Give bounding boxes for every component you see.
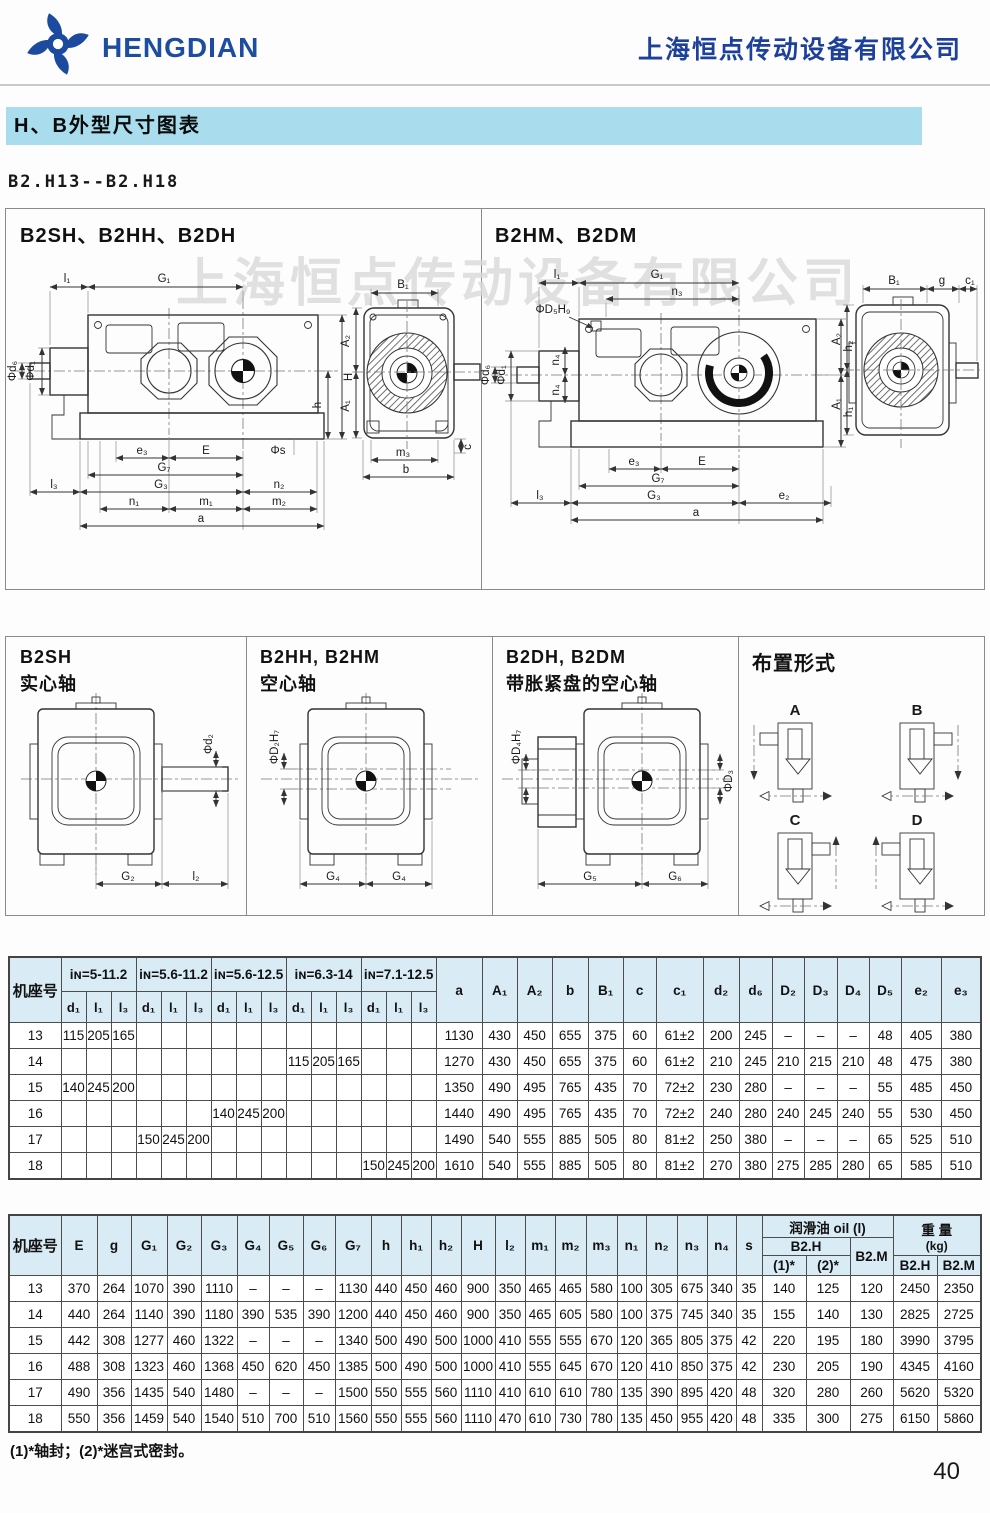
table-cell: 435: [588, 1101, 623, 1127]
row-header: 机座号: [9, 957, 61, 1023]
table-cell: 1110: [461, 1406, 495, 1433]
drawing-b2sh-side-end: l₁ G₁ Φd₁ Φd₆ H h e₃ E Φs G₇ l₃ G₃ n₂ n₁…: [6, 253, 481, 555]
table-cell: [186, 1023, 211, 1049]
table-cell: 560: [431, 1380, 461, 1406]
table-cell: [111, 1049, 136, 1075]
frame-size: 16: [9, 1354, 61, 1380]
column-header: d₆: [739, 957, 772, 1023]
table-cell: [161, 1023, 186, 1049]
svg-text:G₄: G₄: [326, 871, 340, 883]
table-cell: 200: [111, 1075, 136, 1101]
table-cell: 450: [517, 1049, 552, 1075]
table-cell: 410: [646, 1354, 677, 1380]
table-cell: 645: [555, 1354, 586, 1380]
sub-header: l₁: [236, 992, 261, 1023]
panel-title: B2HM、B2DM: [495, 219, 637, 248]
weight-cell: 6150: [893, 1406, 937, 1433]
dimension-table-1-wrap: 机座号iɴ=5-11.2iɴ=5.6-11.2iɴ=5.6-12.5iɴ=6.3…: [8, 956, 982, 1180]
table-cell: 308: [97, 1354, 131, 1380]
table-cell: 450: [646, 1406, 677, 1433]
table-cell: 610: [555, 1380, 586, 1406]
table-cell: [236, 1153, 261, 1180]
svg-text:A₂: A₂: [831, 333, 843, 345]
arrangement-label: D: [912, 812, 923, 829]
table-row: 1411520516512704304506553756061±22102452…: [9, 1049, 981, 1075]
svg-text:A₂: A₂: [340, 335, 352, 347]
table-cell: 555: [517, 1153, 552, 1180]
oil-cell: 140: [762, 1276, 806, 1302]
svg-text:m₂: m₂: [272, 496, 286, 508]
table-cell: [411, 1101, 436, 1127]
table-cell: 450: [237, 1354, 269, 1380]
svg-text:m₃: m₃: [396, 447, 411, 459]
table-cell: 450: [303, 1354, 335, 1380]
table-cell: 440: [61, 1302, 97, 1328]
table-cell: 1500: [335, 1380, 371, 1406]
table-cell: 61±2: [656, 1023, 703, 1049]
sub-header: d₁: [136, 992, 161, 1023]
frame-size: 17: [9, 1380, 61, 1406]
table-cell: 440: [371, 1276, 401, 1302]
table-cell: –: [303, 1328, 335, 1354]
svg-text:h: h: [312, 402, 324, 408]
table-cell: 555: [555, 1328, 586, 1354]
column-header: n₁: [617, 1215, 646, 1276]
table-cell: –: [303, 1380, 335, 1406]
svg-text:ΦD₂H₇: ΦD₂H₇: [269, 730, 281, 764]
table-cell: 435: [588, 1075, 623, 1101]
frame-size: 14: [9, 1049, 61, 1075]
table-cell: 670: [586, 1328, 617, 1354]
oil-cell: 180: [850, 1328, 893, 1354]
frame-size: 13: [9, 1023, 61, 1049]
oil-cell: 335: [762, 1406, 806, 1433]
column-header: n₃: [677, 1215, 707, 1276]
table-cell: 140: [211, 1101, 236, 1127]
oil-cell: 190: [850, 1354, 893, 1380]
table-cell: 495: [517, 1075, 552, 1101]
table-cell: 540: [167, 1380, 201, 1406]
svg-text:G₄: G₄: [392, 871, 406, 883]
table-cell: [361, 1049, 386, 1075]
table-cell: [286, 1023, 311, 1049]
table-cell: [111, 1127, 136, 1153]
svg-text:n₄: n₄: [550, 384, 562, 395]
svg-text:h₂: h₂: [843, 341, 855, 352]
sub-header: d₁: [211, 992, 236, 1023]
column-header: e₃: [941, 957, 981, 1023]
table-cell: [336, 1023, 361, 1049]
table-row: 1311520516511304304506553756061±2200245–…: [9, 1023, 981, 1049]
table-cell: 1140: [131, 1302, 167, 1328]
svg-text:e₃: e₃: [628, 456, 639, 468]
table-cell: 275: [772, 1153, 804, 1180]
dimension-table-2: 机座号EgG₁G₂G₃G₄G₅G₆G₇hh₁h₂Hl₂m₁m₂m₃n₁n₂n₃n…: [8, 1214, 982, 1433]
table-cell: 675: [677, 1276, 707, 1302]
drawing-b2hm-side-end: l₁ G₁ n₃ ΦD₅H₉ Φd₁ Φd₆ n₄ n₄ h₂ h₁ e₃ E …: [481, 253, 981, 555]
table-cell: 81±2: [656, 1127, 703, 1153]
table-cell: 1540: [201, 1406, 237, 1433]
table-cell: 655: [552, 1023, 588, 1049]
svg-text:G₅: G₅: [583, 871, 597, 883]
table-cell: 1435: [131, 1380, 167, 1406]
table-cell: 61±2: [656, 1049, 703, 1075]
column-header: h₁: [401, 1215, 431, 1276]
table-cell: 550: [371, 1406, 401, 1433]
table-cell: 70: [623, 1101, 656, 1127]
table-row: 1514024520013504904957654357072±2230280–…: [9, 1075, 981, 1101]
oil-b2m-header: B2.M: [850, 1238, 893, 1276]
table-cell: 550: [371, 1380, 401, 1406]
table-cell: 440: [371, 1302, 401, 1328]
table-row: 1749035614355401480–––150055055556011104…: [9, 1380, 981, 1406]
column-header: m₁: [525, 1215, 555, 1276]
table-cell: [311, 1101, 336, 1127]
table-cell: 535: [269, 1302, 303, 1328]
column-header: G₁: [131, 1215, 167, 1276]
table-cell: 620: [269, 1354, 303, 1380]
table-cell: 430: [482, 1049, 517, 1075]
table-cell: 605: [555, 1302, 586, 1328]
svg-text:Φd₁: Φd₁: [496, 365, 508, 385]
table-cell: 1110: [461, 1380, 495, 1406]
arrangement-label: A: [790, 702, 801, 719]
table-cell: 805: [677, 1328, 707, 1354]
table-cell: –: [237, 1328, 269, 1354]
svg-text:A₁: A₁: [340, 400, 352, 412]
table-cell: 270: [703, 1153, 739, 1180]
svg-text:G₃: G₃: [647, 490, 661, 502]
table-cell: [286, 1127, 311, 1153]
table-cell: 210: [772, 1049, 804, 1075]
table-cell: 555: [401, 1406, 431, 1433]
column-header: h: [371, 1215, 401, 1276]
table-cell: 488: [61, 1354, 97, 1380]
column-header: G₂: [167, 1215, 201, 1276]
table-cell: [161, 1153, 186, 1180]
svg-text:E: E: [698, 456, 706, 468]
table-cell: [261, 1075, 286, 1101]
ratio-group-header: iɴ=7.1-12.5: [361, 957, 436, 992]
frame-size: 14: [9, 1302, 61, 1328]
svg-text:Φd₁: Φd₁: [25, 361, 37, 381]
table-cell: 140: [61, 1075, 86, 1101]
table-cell: 380: [941, 1023, 981, 1049]
table-cell: 1322: [201, 1328, 237, 1354]
table-cell: 510: [237, 1406, 269, 1433]
table-cell: 540: [482, 1153, 517, 1180]
oil-sub-header: (1)*: [762, 1256, 806, 1276]
weight-cell: 5320: [937, 1380, 981, 1406]
oil-cell: 120: [850, 1276, 893, 1302]
table-cell: 1480: [201, 1380, 237, 1406]
ratio-group-header: iɴ=5.6-12.5: [211, 957, 286, 992]
panel-arrangements: 布置形式 ABCD: [738, 637, 984, 915]
svg-text:c: c: [462, 444, 474, 450]
column-header: n₄: [707, 1215, 736, 1276]
column-header: G₅: [269, 1215, 303, 1276]
sub-header: l₃: [336, 992, 361, 1023]
table-cell: 900: [461, 1276, 495, 1302]
svg-text:G₁: G₁: [651, 269, 664, 281]
table-cell: 245: [386, 1153, 411, 1180]
column-header: m₃: [586, 1215, 617, 1276]
weight-header: 重 量(kg): [893, 1215, 981, 1256]
table-cell: 585: [901, 1153, 941, 1180]
table-cell: 1270: [436, 1049, 482, 1075]
svg-text:B₁: B₁: [397, 279, 409, 291]
table-cell: 240: [703, 1101, 739, 1127]
gearbox-side-view: [517, 319, 823, 447]
table-cell: [211, 1049, 236, 1075]
table-cell: [211, 1023, 236, 1049]
table-cell: 955: [677, 1406, 707, 1433]
table-cell: 555: [525, 1354, 555, 1380]
table-cell: 215: [804, 1049, 837, 1075]
table-cell: 485: [901, 1075, 941, 1101]
table-cell: [61, 1153, 86, 1180]
column-header: G₆: [303, 1215, 335, 1276]
table-cell: 72±2: [656, 1075, 703, 1101]
table-cell: 375: [707, 1328, 736, 1354]
table-cell: 380: [739, 1153, 772, 1180]
table-cell: 42: [736, 1354, 762, 1380]
table-cell: 410: [495, 1354, 525, 1380]
table-cell: –: [837, 1075, 869, 1101]
svg-text:Φd₆: Φd₆: [7, 361, 19, 382]
svg-text:H: H: [343, 373, 355, 381]
svg-text:l₁: l₁: [64, 273, 71, 285]
oil-cell: 280: [806, 1380, 850, 1406]
svg-text:n₁: n₁: [129, 496, 139, 508]
table-cell: 465: [525, 1302, 555, 1328]
table-cell: 450: [401, 1276, 431, 1302]
table-cell: 1323: [131, 1354, 167, 1380]
table-cell: 1130: [436, 1023, 482, 1049]
weight-sub-header: B2.M: [937, 1256, 981, 1276]
weight-sub-header: B2.H: [893, 1256, 937, 1276]
table-cell: 380: [739, 1127, 772, 1153]
table-cell: 280: [739, 1101, 772, 1127]
svg-text:G₃: G₃: [154, 479, 168, 491]
table-cell: 610: [525, 1380, 555, 1406]
column-header: A₂: [517, 957, 552, 1023]
table-cell: 510: [941, 1127, 981, 1153]
table-cell: [411, 1023, 436, 1049]
table-cell: 135: [617, 1406, 646, 1433]
svg-text:G₆: G₆: [668, 871, 682, 883]
table-cell: 42: [736, 1328, 762, 1354]
table-cell: 150: [361, 1153, 386, 1180]
table-cell: 530: [901, 1101, 941, 1127]
column-header: c: [623, 957, 656, 1023]
table-cell: –: [237, 1276, 269, 1302]
hengdian-logo-icon: [26, 12, 90, 81]
table-cell: 308: [97, 1328, 131, 1354]
column-header: H: [461, 1215, 495, 1276]
table-cell: [186, 1075, 211, 1101]
frame-size: 15: [9, 1075, 61, 1101]
table-cell: 48: [736, 1406, 762, 1433]
table-cell: [61, 1101, 86, 1127]
table-cell: [386, 1101, 411, 1127]
table-cell: [161, 1101, 186, 1127]
table-cell: 500: [431, 1354, 461, 1380]
table-cell: –: [772, 1023, 804, 1049]
table-cell: 365: [646, 1328, 677, 1354]
column-header: b: [552, 957, 588, 1023]
oil-cell: 230: [762, 1354, 806, 1380]
column-header: G₄: [237, 1215, 269, 1276]
ratio-group-header: iɴ=6.3-14: [286, 957, 361, 992]
table-cell: 730: [555, 1406, 586, 1433]
weight-cell: 2350: [937, 1276, 981, 1302]
column-header: D₂: [772, 957, 804, 1023]
table-cell: 48: [736, 1380, 762, 1406]
table-cell: 48: [869, 1049, 901, 1075]
table-cell: 245: [739, 1023, 772, 1049]
table-cell: [136, 1049, 161, 1075]
svg-text:G₇: G₇: [652, 473, 665, 485]
table-cell: 490: [482, 1101, 517, 1127]
column-header: e₂: [901, 957, 941, 1023]
table-cell: 135: [617, 1380, 646, 1406]
table-cell: 460: [167, 1354, 201, 1380]
table-cell: 240: [837, 1101, 869, 1127]
sub-header: l₁: [311, 992, 336, 1023]
table-cell: 390: [167, 1276, 201, 1302]
table-cell: –: [269, 1380, 303, 1406]
table-cell: 1200: [335, 1302, 371, 1328]
frame-size: 15: [9, 1328, 61, 1354]
table-cell: 280: [837, 1153, 869, 1180]
table-cell: [161, 1049, 186, 1075]
dimension-table-1: 机座号iɴ=5-11.2iɴ=5.6-11.2iɴ=5.6-12.5iɴ=6.3…: [8, 956, 982, 1180]
sub-header: d₁: [361, 992, 386, 1023]
table-cell: [286, 1075, 311, 1101]
panel-b2hh-hollow-shaft: B2HH, B2HM 空心轴: [246, 637, 493, 915]
svg-text:n₂: n₂: [274, 479, 285, 491]
table-cell: [386, 1075, 411, 1101]
table-cell: 780: [586, 1406, 617, 1433]
frame-size: 18: [9, 1153, 61, 1180]
weight-cell: 4345: [893, 1354, 937, 1380]
table-cell: 120: [617, 1354, 646, 1380]
table-cell: 35: [736, 1276, 762, 1302]
svg-text:A₁: A₁: [831, 398, 843, 410]
table-cell: [261, 1049, 286, 1075]
table-cell: 81±2: [656, 1153, 703, 1180]
table-cell: 115: [286, 1049, 311, 1075]
table-cell: 1385: [335, 1354, 371, 1380]
oil-cell: 205: [806, 1354, 850, 1380]
table-cell: 245: [804, 1101, 837, 1127]
brand-name: HENGDIAN: [102, 32, 259, 64]
svg-text:Φs: Φs: [271, 445, 286, 457]
table-cell: 550: [61, 1406, 97, 1433]
table-cell: [111, 1153, 136, 1180]
oil-cell: 260: [850, 1380, 893, 1406]
table-cell: 210: [703, 1049, 739, 1075]
table-cell: 1000: [461, 1328, 495, 1354]
table-cell: 555: [525, 1328, 555, 1354]
table-cell: 200: [261, 1101, 286, 1127]
table-cell: 450: [401, 1302, 431, 1328]
table-cell: 245: [236, 1101, 261, 1127]
table-cell: 370: [61, 1276, 97, 1302]
svg-text:e₂: e₂: [779, 490, 790, 502]
table-cell: 580: [586, 1276, 617, 1302]
panel-title: B2SH、B2HH、B2DH: [20, 219, 236, 248]
sub-header: l₃: [261, 992, 286, 1023]
oil-sub-header: (2)*: [806, 1256, 850, 1276]
drawing-solid-shaft: Φd₂ G₂ l₂: [6, 689, 246, 911]
table-cell: [161, 1075, 186, 1101]
table-cell: [136, 1023, 161, 1049]
table-cell: –: [837, 1127, 869, 1153]
table-cell: 1350: [436, 1075, 482, 1101]
column-header: B₁: [588, 957, 623, 1023]
table-cell: [86, 1049, 111, 1075]
sub-header: l₁: [386, 992, 411, 1023]
svg-text:E: E: [202, 445, 210, 457]
table-cell: [236, 1127, 261, 1153]
table-cell: 405: [901, 1023, 941, 1049]
svg-text:n₃: n₃: [671, 286, 682, 298]
table-cell: 280: [739, 1075, 772, 1101]
arrangement-C: C: [760, 812, 840, 912]
table-cell: 460: [431, 1302, 461, 1328]
table-cell: [136, 1153, 161, 1180]
table-cell: 72±2: [656, 1101, 703, 1127]
gearbox-side-view: [30, 315, 324, 439]
frame-size: 18: [9, 1406, 61, 1433]
table-cell: 205: [86, 1023, 111, 1049]
table-cell: 264: [97, 1276, 131, 1302]
table-cell: 380: [941, 1049, 981, 1075]
oil-cell: 220: [762, 1328, 806, 1354]
table-cell: 765: [552, 1075, 588, 1101]
svg-text:ΦD₃: ΦD₃: [723, 770, 735, 792]
outline-drawing-box: 上海恒点传动设备有限公司 B2SH、B2HH、B2DH: [5, 208, 985, 590]
table-cell: 510: [941, 1153, 981, 1180]
table-cell: 610: [525, 1406, 555, 1433]
column-header: n₂: [646, 1215, 677, 1276]
table-cell: 340: [707, 1276, 736, 1302]
table-cell: [136, 1075, 161, 1101]
sub-header: d₁: [286, 992, 311, 1023]
table-cell: 100: [617, 1276, 646, 1302]
oil-cell: 320: [762, 1380, 806, 1406]
oil-cell: 300: [806, 1406, 850, 1433]
svg-text:ΦD₄H₇: ΦD₄H₇: [511, 730, 523, 764]
ratio-group-header: iɴ=5-11.2: [61, 957, 136, 992]
footnote: (1)*轴封；(2)*迷宫式密封。: [10, 1440, 193, 1461]
table-cell: 200: [703, 1023, 739, 1049]
table-cell: [311, 1153, 336, 1180]
table-cell: [361, 1075, 386, 1101]
table-cell: [86, 1153, 111, 1180]
panel-b2sh-b2hh-b2dh: B2SH、B2HH、B2DH: [6, 209, 482, 589]
table-cell: 120: [617, 1328, 646, 1354]
gearbox-end-view: [354, 300, 481, 449]
sub-header: l₁: [86, 992, 111, 1023]
arrangement-label: B: [912, 702, 923, 719]
dimension-labels: Φd₂ G₂ l₂: [121, 734, 215, 883]
table-cell: 230: [703, 1075, 739, 1101]
table-cell: 1180: [201, 1302, 237, 1328]
dimension-table-2-wrap: 机座号EgG₁G₂G₃G₄G₅G₆G₇hh₁h₂Hl₂m₁m₂m₃n₁n₂n₃n…: [8, 1214, 982, 1433]
